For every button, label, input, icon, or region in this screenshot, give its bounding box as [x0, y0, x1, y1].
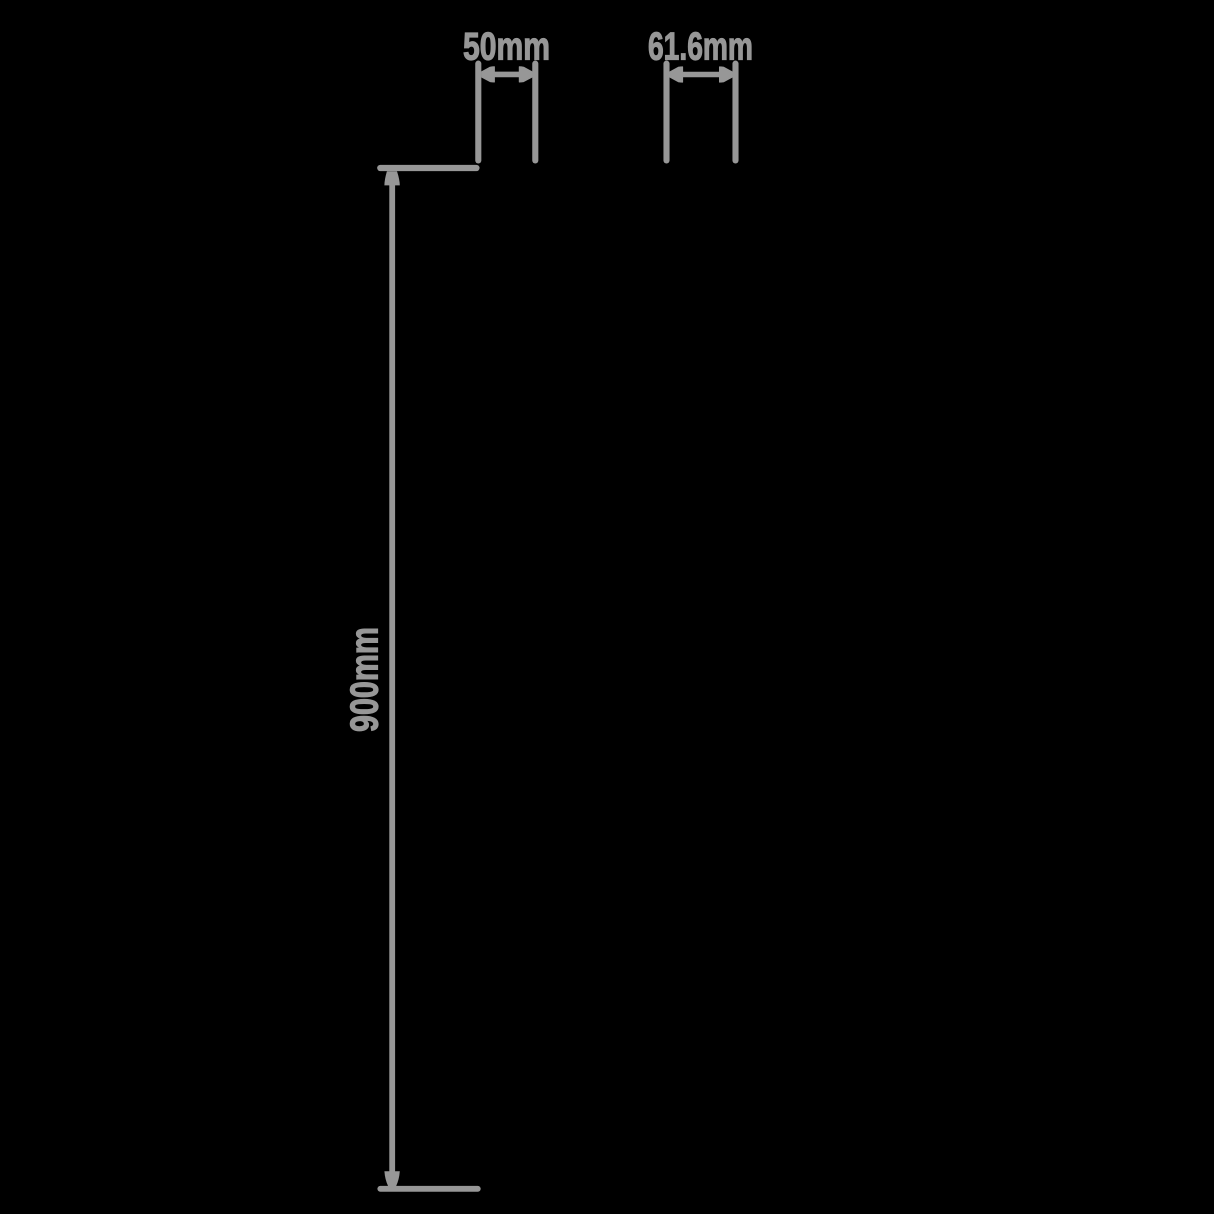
svg-text:900mm: 900mm	[344, 627, 387, 732]
svg-text:61.6mm: 61.6mm	[648, 26, 753, 69]
svg-text:50mm: 50mm	[463, 26, 550, 69]
